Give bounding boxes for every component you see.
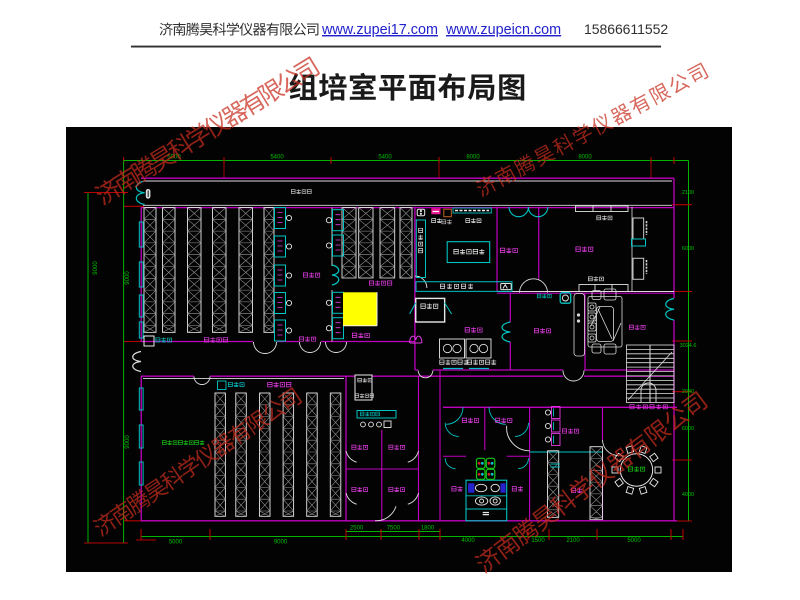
svg-text:15866611552: 15866611552 <box>584 21 668 37</box>
svg-text:1500: 1500 <box>531 538 545 544</box>
svg-text:8000: 8000 <box>466 155 480 161</box>
svg-text:9000: 9000 <box>125 435 131 449</box>
svg-text:5400: 5400 <box>270 155 284 161</box>
svg-text:2500: 2500 <box>350 526 364 532</box>
svg-text:8000: 8000 <box>578 155 592 161</box>
svg-text:www.zupei17.com: www.zupei17.com <box>321 22 438 38</box>
svg-text:3024.6: 3024.6 <box>680 343 697 349</box>
svg-text:1800: 1800 <box>421 526 435 532</box>
svg-text:2100: 2100 <box>566 538 580 544</box>
svg-text:www.zupeicn.com: www.zupeicn.com <box>445 22 561 38</box>
svg-text:5000: 5000 <box>169 540 183 546</box>
svg-text:5400: 5400 <box>378 155 392 161</box>
svg-text:6000: 6000 <box>682 426 694 432</box>
svg-text:4000: 4000 <box>682 492 694 498</box>
svg-text:9000: 9000 <box>125 271 131 285</box>
svg-text:6000: 6000 <box>682 246 694 252</box>
svg-text:7500: 7500 <box>387 526 401 532</box>
svg-text:9000: 9000 <box>274 540 288 546</box>
svg-text:2100: 2100 <box>682 190 694 196</box>
svg-text:9000: 9000 <box>93 261 99 275</box>
svg-text:4000: 4000 <box>461 538 475 544</box>
svg-text:5000: 5000 <box>627 538 641 544</box>
